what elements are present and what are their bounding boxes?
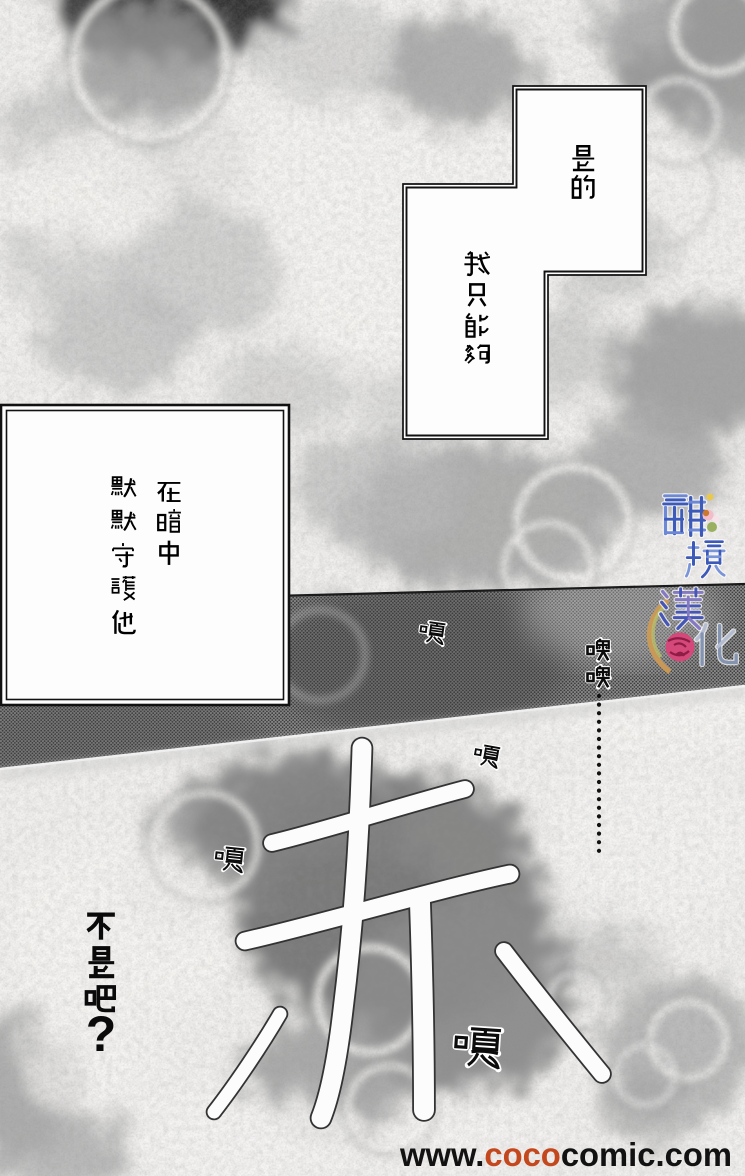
svg-text:?: ? (86, 1006, 117, 1062)
svg-text:www.cococomic.com: www.cococomic.com (399, 1136, 732, 1173)
